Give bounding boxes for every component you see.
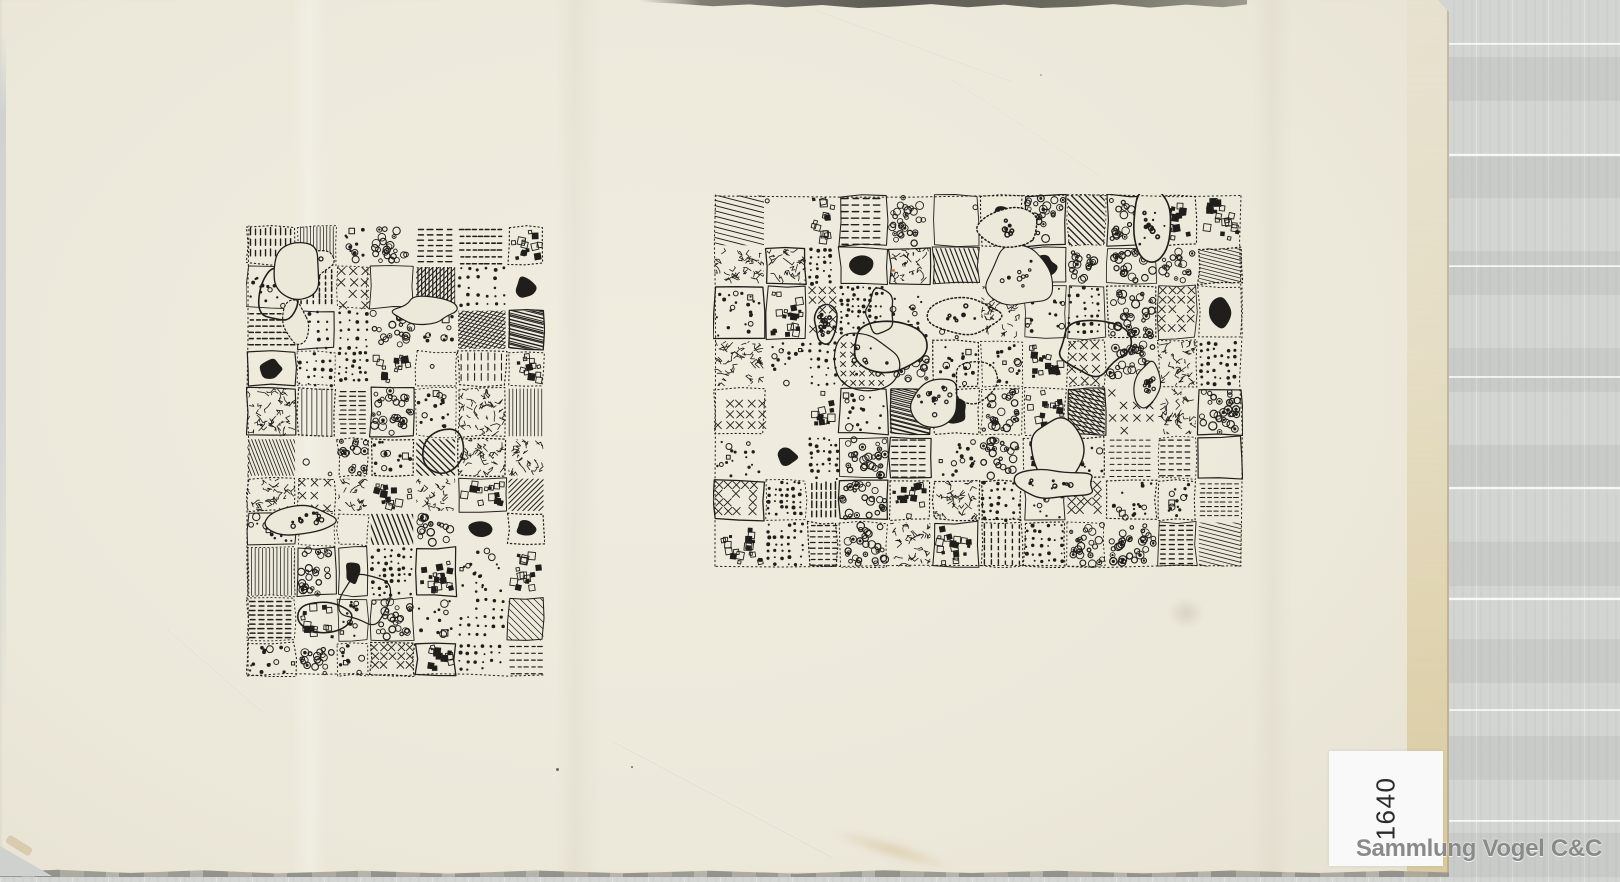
scanner-band	[1252, 0, 1292, 876]
ink-speck	[631, 766, 633, 768]
ink-speck	[1040, 74, 1042, 76]
archival-scan: 1640 Sammlung Vogel C&C	[0, 0, 1620, 882]
ink-drawing-left	[246, 225, 545, 677]
scanner-band	[556, 0, 602, 876]
paper-crease	[613, 740, 835, 858]
inventory-number: 1640	[1371, 777, 1402, 841]
paper-stain	[828, 822, 958, 877]
paper-left-edge-gap	[0, 30, 6, 730]
paper-stain	[1168, 598, 1204, 628]
collection-watermark: Sammlung Vogel C&C	[1356, 835, 1602, 863]
ink-speck	[556, 768, 559, 771]
paper-discolored-edge	[1407, 0, 1449, 876]
paper-crease	[951, 78, 1103, 178]
ink-drawing-right	[713, 194, 1243, 568]
paper-crease	[814, 8, 1012, 82]
